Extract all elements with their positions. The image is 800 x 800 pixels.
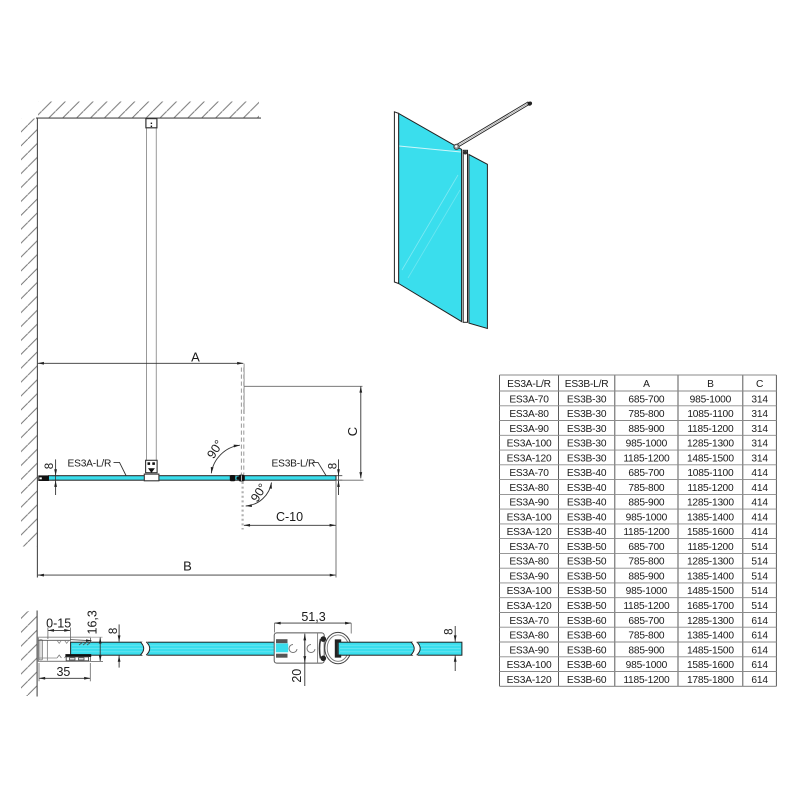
svg-text:16,3: 16,3 — [86, 610, 100, 634]
svg-text:B: B — [183, 559, 192, 574]
svg-text:ES3A-70: ES3A-70 — [509, 616, 549, 627]
svg-text:ES3B-60: ES3B-60 — [567, 660, 607, 671]
svg-text:ES3A-80: ES3A-80 — [509, 557, 549, 568]
svg-text:35: 35 — [56, 665, 70, 679]
svg-text:1385-1400: 1385-1400 — [687, 571, 734, 582]
svg-text:B: B — [707, 379, 714, 390]
svg-text:785-800: 785-800 — [628, 483, 665, 494]
svg-text:ES3A-80: ES3A-80 — [509, 483, 549, 494]
svg-text:ES3A-90: ES3A-90 — [509, 424, 549, 435]
svg-text:614: 614 — [751, 675, 768, 686]
svg-text:314: 314 — [751, 424, 768, 435]
svg-text:514: 514 — [751, 557, 768, 568]
svg-text:ES3B-40: ES3B-40 — [567, 468, 607, 479]
svg-text:ES3A-120: ES3A-120 — [507, 527, 552, 538]
svg-text:614: 614 — [751, 631, 768, 642]
svg-text:1585-1600: 1585-1600 — [687, 527, 734, 538]
svg-text:ES3A-L/R: ES3A-L/R — [68, 458, 112, 469]
svg-text:1285-1300: 1285-1300 — [687, 616, 734, 627]
svg-text:1185-1200: 1185-1200 — [623, 675, 670, 686]
svg-text:ES3A-100: ES3A-100 — [507, 439, 552, 450]
svg-text:ES3B-30: ES3B-30 — [567, 453, 607, 464]
svg-text:414: 414 — [751, 498, 768, 509]
svg-text:ES3A-90: ES3A-90 — [509, 645, 549, 656]
svg-text:1085-1100: 1085-1100 — [687, 409, 734, 420]
svg-text:1285-1300: 1285-1300 — [687, 439, 734, 450]
svg-text:985-1000: 985-1000 — [626, 439, 668, 450]
svg-text:985-1000: 985-1000 — [626, 660, 668, 671]
svg-text:C: C — [345, 427, 360, 436]
svg-text:514: 514 — [751, 586, 768, 597]
svg-text:ES3B-60: ES3B-60 — [567, 645, 607, 656]
svg-text:514: 514 — [751, 571, 768, 582]
svg-text:1385-1400: 1385-1400 — [687, 631, 734, 642]
svg-text:614: 614 — [751, 645, 768, 656]
svg-text:785-800: 785-800 — [628, 557, 665, 568]
svg-text:ES3B-40: ES3B-40 — [567, 512, 607, 523]
svg-text:8: 8 — [443, 628, 455, 634]
svg-text:614: 614 — [751, 660, 768, 671]
svg-text:ES3B-40: ES3B-40 — [567, 483, 607, 494]
svg-text:ES3B-L/R: ES3B-L/R — [272, 458, 316, 469]
svg-text:885-900: 885-900 — [628, 498, 665, 509]
svg-text:ES3B-60: ES3B-60 — [567, 616, 607, 627]
svg-text:1485-1500: 1485-1500 — [687, 586, 734, 597]
svg-text:ES3B-50: ES3B-50 — [567, 542, 607, 553]
svg-text:ES3B-60: ES3B-60 — [567, 675, 607, 686]
svg-text:ES3B-30: ES3B-30 — [567, 394, 607, 405]
svg-text:514: 514 — [751, 601, 768, 612]
svg-text:1385-1400: 1385-1400 — [687, 512, 734, 523]
svg-text:ES3A-70: ES3A-70 — [509, 542, 549, 553]
svg-text:1785-1800: 1785-1800 — [687, 675, 734, 686]
svg-text:785-800: 785-800 — [628, 631, 665, 642]
svg-text:1185-1200: 1185-1200 — [623, 527, 670, 538]
svg-text:ES3A-100: ES3A-100 — [507, 586, 552, 597]
svg-text:414: 414 — [751, 527, 768, 538]
svg-text:ES3A-120: ES3A-120 — [507, 453, 552, 464]
svg-text:C-10: C-10 — [276, 510, 303, 524]
svg-text:414: 414 — [751, 468, 768, 479]
svg-text:0-15: 0-15 — [46, 616, 71, 630]
svg-text:514: 514 — [751, 542, 768, 553]
svg-text:ES3B-50: ES3B-50 — [567, 557, 607, 568]
svg-text:985-1000: 985-1000 — [626, 512, 668, 523]
svg-text:ES3A-120: ES3A-120 — [507, 601, 552, 612]
svg-text:414: 414 — [751, 512, 768, 523]
svg-text:314: 314 — [751, 453, 768, 464]
svg-text:ES3B-30: ES3B-30 — [567, 409, 607, 420]
svg-text:A: A — [643, 379, 650, 390]
svg-text:ES3A-L/R: ES3A-L/R — [507, 379, 551, 390]
svg-text:414: 414 — [751, 483, 768, 494]
svg-text:ES3B-50: ES3B-50 — [567, 586, 607, 597]
svg-text:ES3A-120: ES3A-120 — [507, 675, 552, 686]
svg-text:51,3: 51,3 — [301, 610, 325, 624]
svg-text:885-900: 885-900 — [628, 645, 665, 656]
svg-text:885-900: 885-900 — [628, 424, 665, 435]
svg-text:ES3B-60: ES3B-60 — [567, 631, 607, 642]
svg-text:885-900: 885-900 — [628, 571, 665, 582]
svg-text:ES3A-90: ES3A-90 — [509, 571, 549, 582]
svg-text:785-800: 785-800 — [628, 409, 665, 420]
svg-text:8: 8 — [327, 463, 339, 469]
svg-text:A: A — [191, 350, 200, 365]
svg-text:314: 314 — [751, 394, 768, 405]
svg-text:1185-1200: 1185-1200 — [687, 542, 734, 553]
svg-text:ES3B-30: ES3B-30 — [567, 424, 607, 435]
svg-text:ES3B-30: ES3B-30 — [567, 439, 607, 450]
svg-text:314: 314 — [751, 409, 768, 420]
svg-text:1485-1500: 1485-1500 — [687, 453, 734, 464]
svg-text:685-700: 685-700 — [628, 542, 665, 553]
svg-text:685-700: 685-700 — [628, 468, 665, 479]
svg-text:1185-1200: 1185-1200 — [623, 453, 670, 464]
svg-text:ES3B-40: ES3B-40 — [567, 498, 607, 509]
svg-text:1685-1700: 1685-1700 — [687, 601, 734, 612]
svg-text:ES3A-70: ES3A-70 — [509, 468, 549, 479]
svg-text:90°: 90° — [204, 438, 226, 461]
svg-text:ES3A-100: ES3A-100 — [507, 512, 552, 523]
svg-text:8: 8 — [44, 463, 56, 469]
svg-text:ES3B-50: ES3B-50 — [567, 571, 607, 582]
svg-text:ES3A-90: ES3A-90 — [509, 498, 549, 509]
svg-text:685-700: 685-700 — [628, 394, 665, 405]
svg-text:ES3A-70: ES3A-70 — [509, 394, 549, 405]
svg-text:1285-1300: 1285-1300 — [687, 557, 734, 568]
svg-text:314: 314 — [751, 439, 768, 450]
svg-text:1185-1200: 1185-1200 — [687, 483, 734, 494]
svg-text:C: C — [756, 379, 763, 390]
svg-text:8: 8 — [108, 628, 120, 634]
svg-text:1285-1300: 1285-1300 — [687, 498, 734, 509]
svg-text:1485-1500: 1485-1500 — [687, 645, 734, 656]
svg-text:985-1000: 985-1000 — [690, 394, 732, 405]
svg-text:ES3B-50: ES3B-50 — [567, 601, 607, 612]
svg-text:90°: 90° — [248, 481, 270, 504]
svg-text:ES3B-40: ES3B-40 — [567, 527, 607, 538]
svg-text:1185-1200: 1185-1200 — [623, 601, 670, 612]
svg-text:614: 614 — [751, 616, 768, 627]
svg-text:1185-1200: 1185-1200 — [687, 424, 734, 435]
svg-text:ES3A-100: ES3A-100 — [507, 660, 552, 671]
svg-text:ES3A-80: ES3A-80 — [509, 631, 549, 642]
svg-text:20: 20 — [290, 669, 304, 683]
svg-text:1585-1600: 1585-1600 — [687, 660, 734, 671]
svg-text:1085-1100: 1085-1100 — [687, 468, 734, 479]
svg-text:685-700: 685-700 — [628, 616, 665, 627]
svg-text:985-1000: 985-1000 — [626, 586, 668, 597]
svg-text:ES3B-L/R: ES3B-L/R — [565, 379, 609, 390]
svg-text:ES3A-80: ES3A-80 — [509, 409, 549, 420]
